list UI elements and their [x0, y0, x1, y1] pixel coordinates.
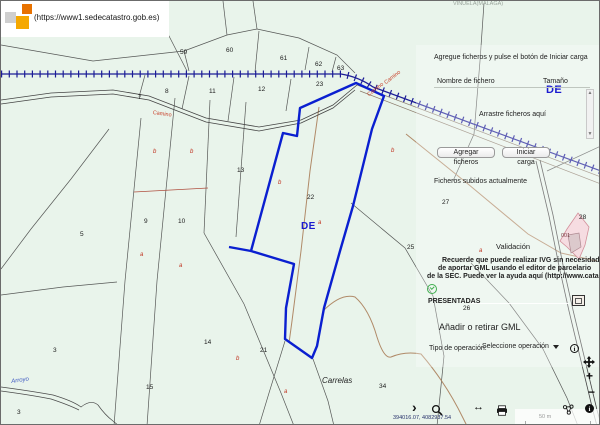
- catastro-map-viewer: 5960616263781112231322910527252628141533…: [0, 0, 600, 425]
- url-overlay: (https://www1.sedecatastro.gob.es): [1, 1, 169, 37]
- operation-select[interactable]: Seleccione operación: [482, 343, 559, 350]
- info-filled-icon[interactable]: i: [585, 404, 594, 413]
- notice-line-3: de la SEC. Puede ver la ayuda aquí (http…: [427, 273, 600, 281]
- parcel-lines: [1, 1, 600, 425]
- measure-arrows-icon[interactable]: ↔: [473, 401, 484, 413]
- cadastral-map[interactable]: [1, 1, 600, 425]
- km-marker: [572, 295, 585, 306]
- scroll-down-icon[interactable]: ▼: [587, 131, 593, 138]
- sec-logo: [5, 12, 16, 23]
- dropzone-text: Arrastre ficheros aquí: [479, 111, 546, 119]
- validation-title: Validación: [496, 243, 530, 252]
- gml-section-title: Añadir o retirar GML: [439, 322, 521, 332]
- file-size-column-header: Tamaño: [543, 78, 568, 86]
- search-icon[interactable]: [431, 403, 443, 421]
- file-table-divider: [434, 87, 590, 88]
- file-list-scrollbar[interactable]: ▲ ▼: [586, 89, 594, 139]
- layers-share-icon[interactable]: [562, 403, 574, 421]
- status-row-divider: [471, 303, 569, 304]
- sec-logo: [16, 16, 29, 29]
- zoom-out-icon[interactable]: −: [588, 385, 595, 399]
- add-files-button[interactable]: Agregar ficheros: [437, 147, 495, 158]
- scroll-up-icon[interactable]: ▲: [587, 90, 593, 97]
- road-parallel-lines: [357, 85, 600, 184]
- print-icon[interactable]: [495, 403, 509, 421]
- operation-type-label: Tipo de operación:: [429, 345, 487, 353]
- notice-line-1: Recuerde que puede realizar IVG sin nece…: [442, 257, 600, 265]
- info-icon[interactable]: i: [570, 344, 579, 353]
- site-url: (https://www1.sedecatastro.gob.es): [34, 13, 159, 22]
- chevron-down-icon: [553, 345, 559, 349]
- zoom-in-icon[interactable]: +: [586, 369, 593, 383]
- sec-logo: [22, 4, 32, 14]
- selected-parcel-outline[interactable]: [229, 83, 384, 358]
- stream-lines: [1, 387, 119, 425]
- start-upload-button[interactable]: Iniciar carga: [502, 147, 550, 158]
- check-circle-icon: [427, 284, 437, 294]
- red-divider-line: [134, 188, 208, 192]
- upload-instruction: Agregue ficheros y pulse el botón de Ini…: [434, 54, 588, 62]
- operation-select-value: Seleccione operación: [482, 343, 549, 350]
- uploaded-files-title: Ficheros subidos actualmente: [434, 178, 527, 186]
- pink-parcel[interactable]: [560, 213, 589, 259]
- scale-tick: [525, 421, 591, 425]
- chevron-right-icon[interactable]: ›: [412, 399, 417, 415]
- file-name-column-header: Nombre de fichero: [437, 78, 495, 86]
- notice-line-2: de aportar GML usando el editor de parce…: [438, 265, 591, 273]
- scale-label: 50 m: [539, 414, 551, 420]
